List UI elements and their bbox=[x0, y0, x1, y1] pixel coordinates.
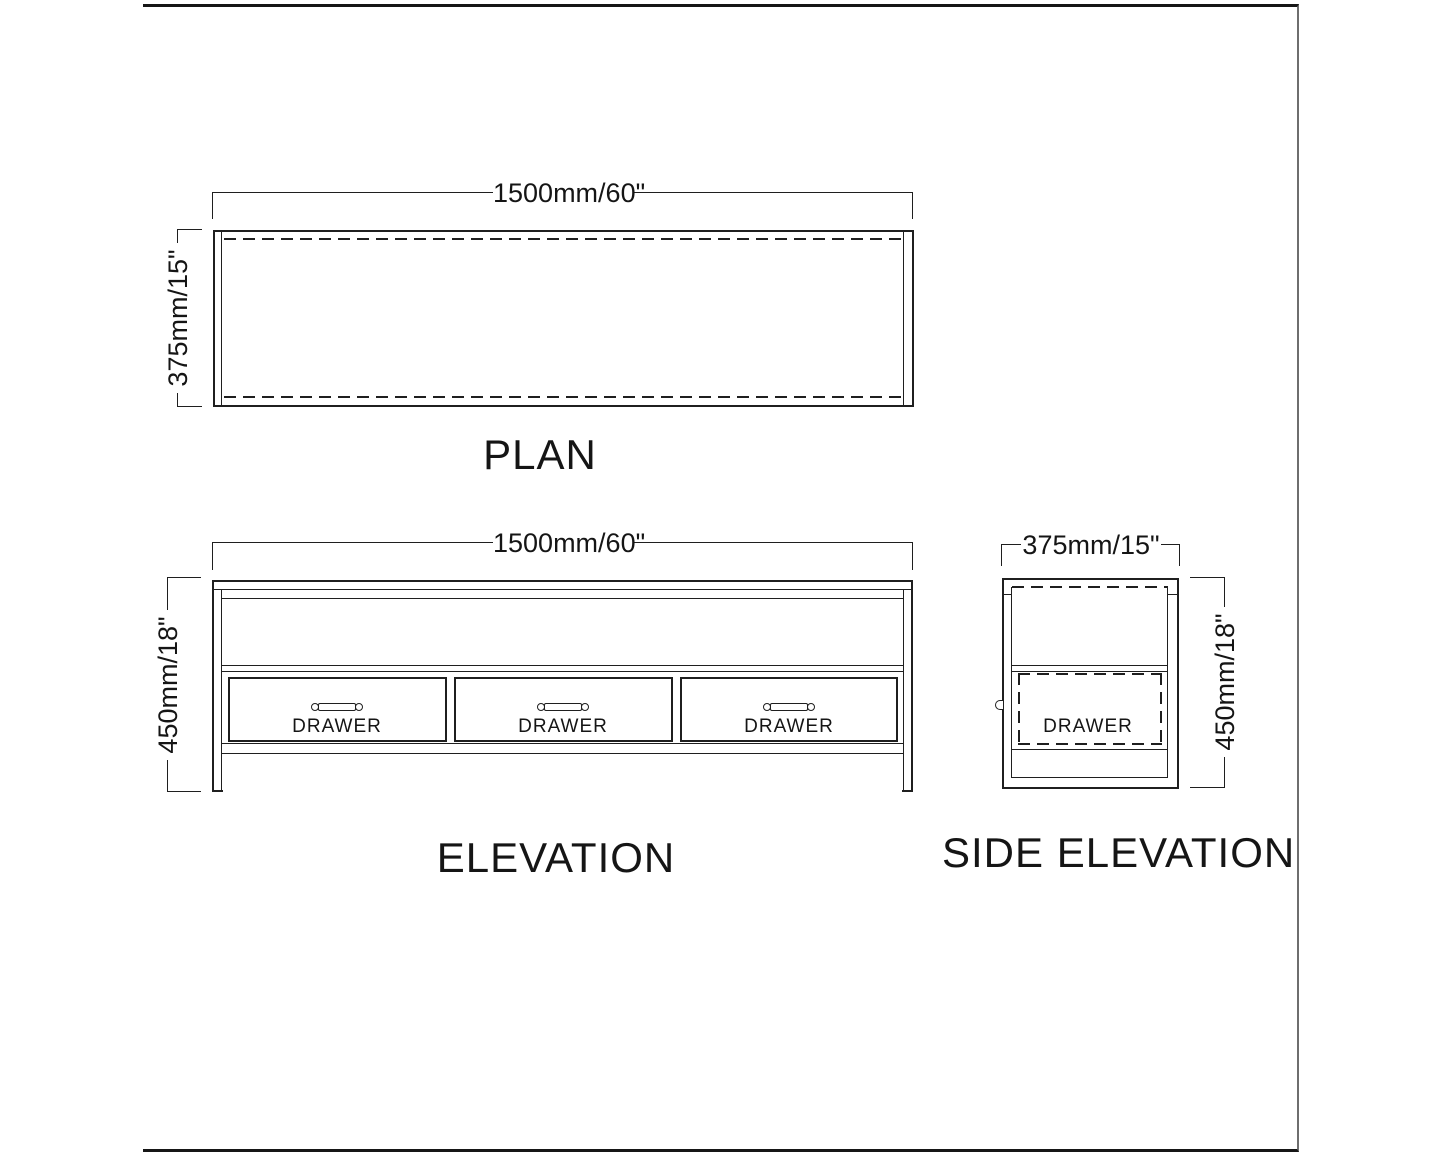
elevation-carcass-ceiling bbox=[222, 598, 904, 599]
elevation-title: ELEVATION bbox=[406, 836, 706, 880]
handle-bar-icon bbox=[544, 703, 582, 711]
plan-side-panel-right bbox=[903, 232, 904, 405]
drawer-label: DRAWER bbox=[503, 717, 623, 737]
side-top-tick-right bbox=[1168, 594, 1178, 595]
elevation-width-dimension: 1500mm/60" bbox=[493, 528, 633, 558]
elevation-leg-right-foot bbox=[902, 790, 913, 792]
elevation-shelf-bottom bbox=[222, 671, 904, 672]
plan-hidden-edge-top bbox=[224, 238, 903, 240]
elevation-tabletop-bottom bbox=[213, 589, 913, 590]
drawer-label: DRAWER bbox=[277, 717, 397, 737]
side-shelf-top bbox=[1012, 665, 1168, 666]
drawing-sheet: { "sheet": { "background": "#ffffff", "l… bbox=[0, 0, 1445, 1156]
plan-outline bbox=[213, 230, 914, 407]
elevation-leg-left-outer bbox=[212, 580, 214, 792]
plan-depth-dimension: 375mm/15" bbox=[163, 243, 193, 393]
side-depth-dim-tick-right bbox=[1179, 544, 1180, 566]
handle-end-icon bbox=[581, 703, 589, 711]
elevation-height-dim-tick-bottom bbox=[167, 791, 201, 792]
elevation-leg-right-outer bbox=[911, 580, 913, 792]
elevation-height-dimension: 450mm/18" bbox=[153, 610, 183, 760]
plan-width-dimension: 1500mm/60" bbox=[493, 178, 633, 208]
side-bottom-rail bbox=[1012, 777, 1168, 778]
plan-title: PLAN bbox=[440, 433, 640, 477]
elevation-bottom-rail-top bbox=[222, 743, 904, 744]
elevation-width-dim-tick-left bbox=[212, 542, 213, 570]
plan-depth-dim-tick-top bbox=[177, 229, 202, 230]
elevation-width-dim-tick-right bbox=[912, 542, 913, 570]
elevation-leg-right-inner bbox=[903, 589, 904, 792]
handle-end-icon bbox=[355, 703, 363, 711]
drawer-handle bbox=[537, 701, 589, 713]
plan-width-dim-tick-left bbox=[212, 192, 213, 219]
drawer-handle bbox=[311, 701, 363, 713]
elevation-height-dim-tick-top bbox=[167, 577, 201, 578]
side-drawer-support bbox=[1012, 749, 1168, 750]
handle-end-icon bbox=[311, 703, 319, 711]
plan-width-dim-tick-right bbox=[912, 192, 913, 219]
side-drawer-hidden-bottom bbox=[1018, 743, 1162, 745]
plan-hidden-edge-bottom bbox=[224, 396, 903, 398]
elevation-leg-left-foot bbox=[212, 790, 223, 792]
side-elevation-title: SIDE ELEVATION bbox=[942, 831, 1294, 875]
elevation-bottom-rail-bottom bbox=[222, 753, 904, 754]
side-depth-dim-tick-left bbox=[1001, 544, 1002, 566]
side-drawer-hidden-right bbox=[1160, 673, 1162, 745]
drawer-handle bbox=[763, 701, 815, 713]
side-drawer-hidden-top bbox=[1018, 673, 1162, 675]
handle-end-icon bbox=[807, 703, 815, 711]
elevation-tabletop-top bbox=[213, 580, 913, 582]
handle-bar-icon bbox=[770, 703, 808, 711]
side-depth-dimension: 375mm/15" bbox=[1021, 530, 1161, 560]
plan-depth-dim-tick-bottom bbox=[177, 406, 202, 407]
side-outline bbox=[1002, 578, 1179, 789]
drawer-label: DRAWER bbox=[1028, 717, 1148, 737]
handle-profile-icon bbox=[995, 700, 1003, 710]
side-hidden-tabletop-edge bbox=[1012, 586, 1168, 588]
side-height-dim-tick-bottom bbox=[1190, 787, 1225, 788]
elevation-shelf-top bbox=[222, 665, 904, 666]
handle-bar-icon bbox=[318, 703, 356, 711]
side-height-dimension: 450mm/18" bbox=[1210, 607, 1240, 757]
side-shelf-bottom bbox=[1012, 671, 1168, 672]
handle-end-icon bbox=[537, 703, 545, 711]
side-height-dim-tick-top bbox=[1190, 577, 1225, 578]
elevation-leg-left-inner bbox=[221, 589, 222, 792]
plan-side-panel-left bbox=[221, 232, 222, 405]
side-drawer-hidden-left bbox=[1018, 673, 1020, 745]
drawer-label: DRAWER bbox=[729, 717, 849, 737]
handle-end-icon bbox=[763, 703, 771, 711]
